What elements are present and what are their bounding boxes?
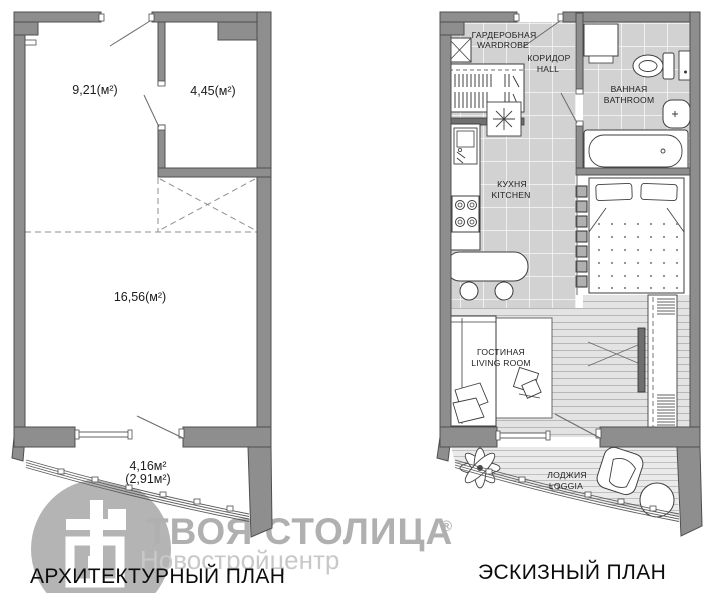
sketch-plan: ГАРДЕРОБНАЯ WARDROBE КОРИДОР HALL ВАННАЯ…	[437, 12, 702, 536]
bathtub-icon	[584, 130, 688, 172]
floorplan-image: ТВОЯ СТОЛИЦА ® Новостройцентр	[0, 0, 707, 593]
label-loggia-en: LOGGIA	[549, 481, 583, 491]
label-hall-ru: КОРИДОР	[527, 53, 570, 63]
bedroom-furniture	[576, 175, 684, 295]
stool-icon	[460, 282, 478, 300]
wall-niche	[25, 40, 36, 45]
caption-architectural-plan: АРХИТЕКТУРНЫЙ ПЛАН	[30, 564, 285, 588]
apartment-interior	[14, 12, 271, 447]
architectural-plan: 9,21(м²) 4,45(м²) 16,56(м²) 4,16м² (2,91…	[12, 12, 272, 537]
label-wardrobe-ru: ГАРДЕРОБНАЯ	[472, 30, 537, 40]
label-wardrobe-en: WARDROBE	[477, 40, 529, 50]
pillow-icon	[641, 183, 678, 200]
kitchen-table	[446, 252, 528, 281]
washbasin-cabinet	[584, 24, 618, 56]
floorplan-svg: ТВОЯ СТОЛИЦА ® Новостройцентр	[0, 0, 707, 593]
label-loggia-ru: ЛОДЖИЯ	[547, 470, 586, 480]
label-kitchen-en: KITCHEN	[491, 190, 530, 200]
area-loggia-full: 4,16м²	[129, 459, 166, 473]
tv-icon	[638, 328, 645, 392]
label-kitchen-ru: КУХНЯ	[497, 179, 527, 189]
area-main-room: 16,56(м²)	[114, 290, 166, 304]
area-top-left-room: 9,21(м²)	[72, 83, 117, 97]
label-living-en: LIVING ROOM	[471, 358, 531, 368]
watermark-registered-icon: ®	[441, 518, 452, 535]
area-top-right-room: 4,45(м²)	[190, 84, 235, 98]
label-bathroom-en: BATHROOM	[604, 95, 655, 105]
sink-icon	[663, 100, 690, 128]
caption-sketch-plan: ЭСКИЗНЫЙ ПЛАН	[478, 560, 666, 584]
stool-icon	[495, 282, 513, 300]
shelf-column	[576, 186, 587, 287]
stove-icon	[452, 196, 479, 232]
label-hall-en: HALL	[537, 64, 559, 74]
closet-strip	[648, 295, 677, 437]
label-living-ru: ГОСТИНАЯ	[477, 347, 525, 357]
toilet-icon	[633, 53, 674, 79]
hood-icon	[487, 102, 521, 136]
label-bathroom-ru: ВАННАЯ	[611, 84, 648, 94]
sofa-icon	[451, 316, 496, 426]
area-loggia-coeff: (2,91м²)	[125, 472, 170, 486]
pillow-icon	[596, 183, 633, 200]
kitchen-sink-icon	[454, 128, 477, 164]
